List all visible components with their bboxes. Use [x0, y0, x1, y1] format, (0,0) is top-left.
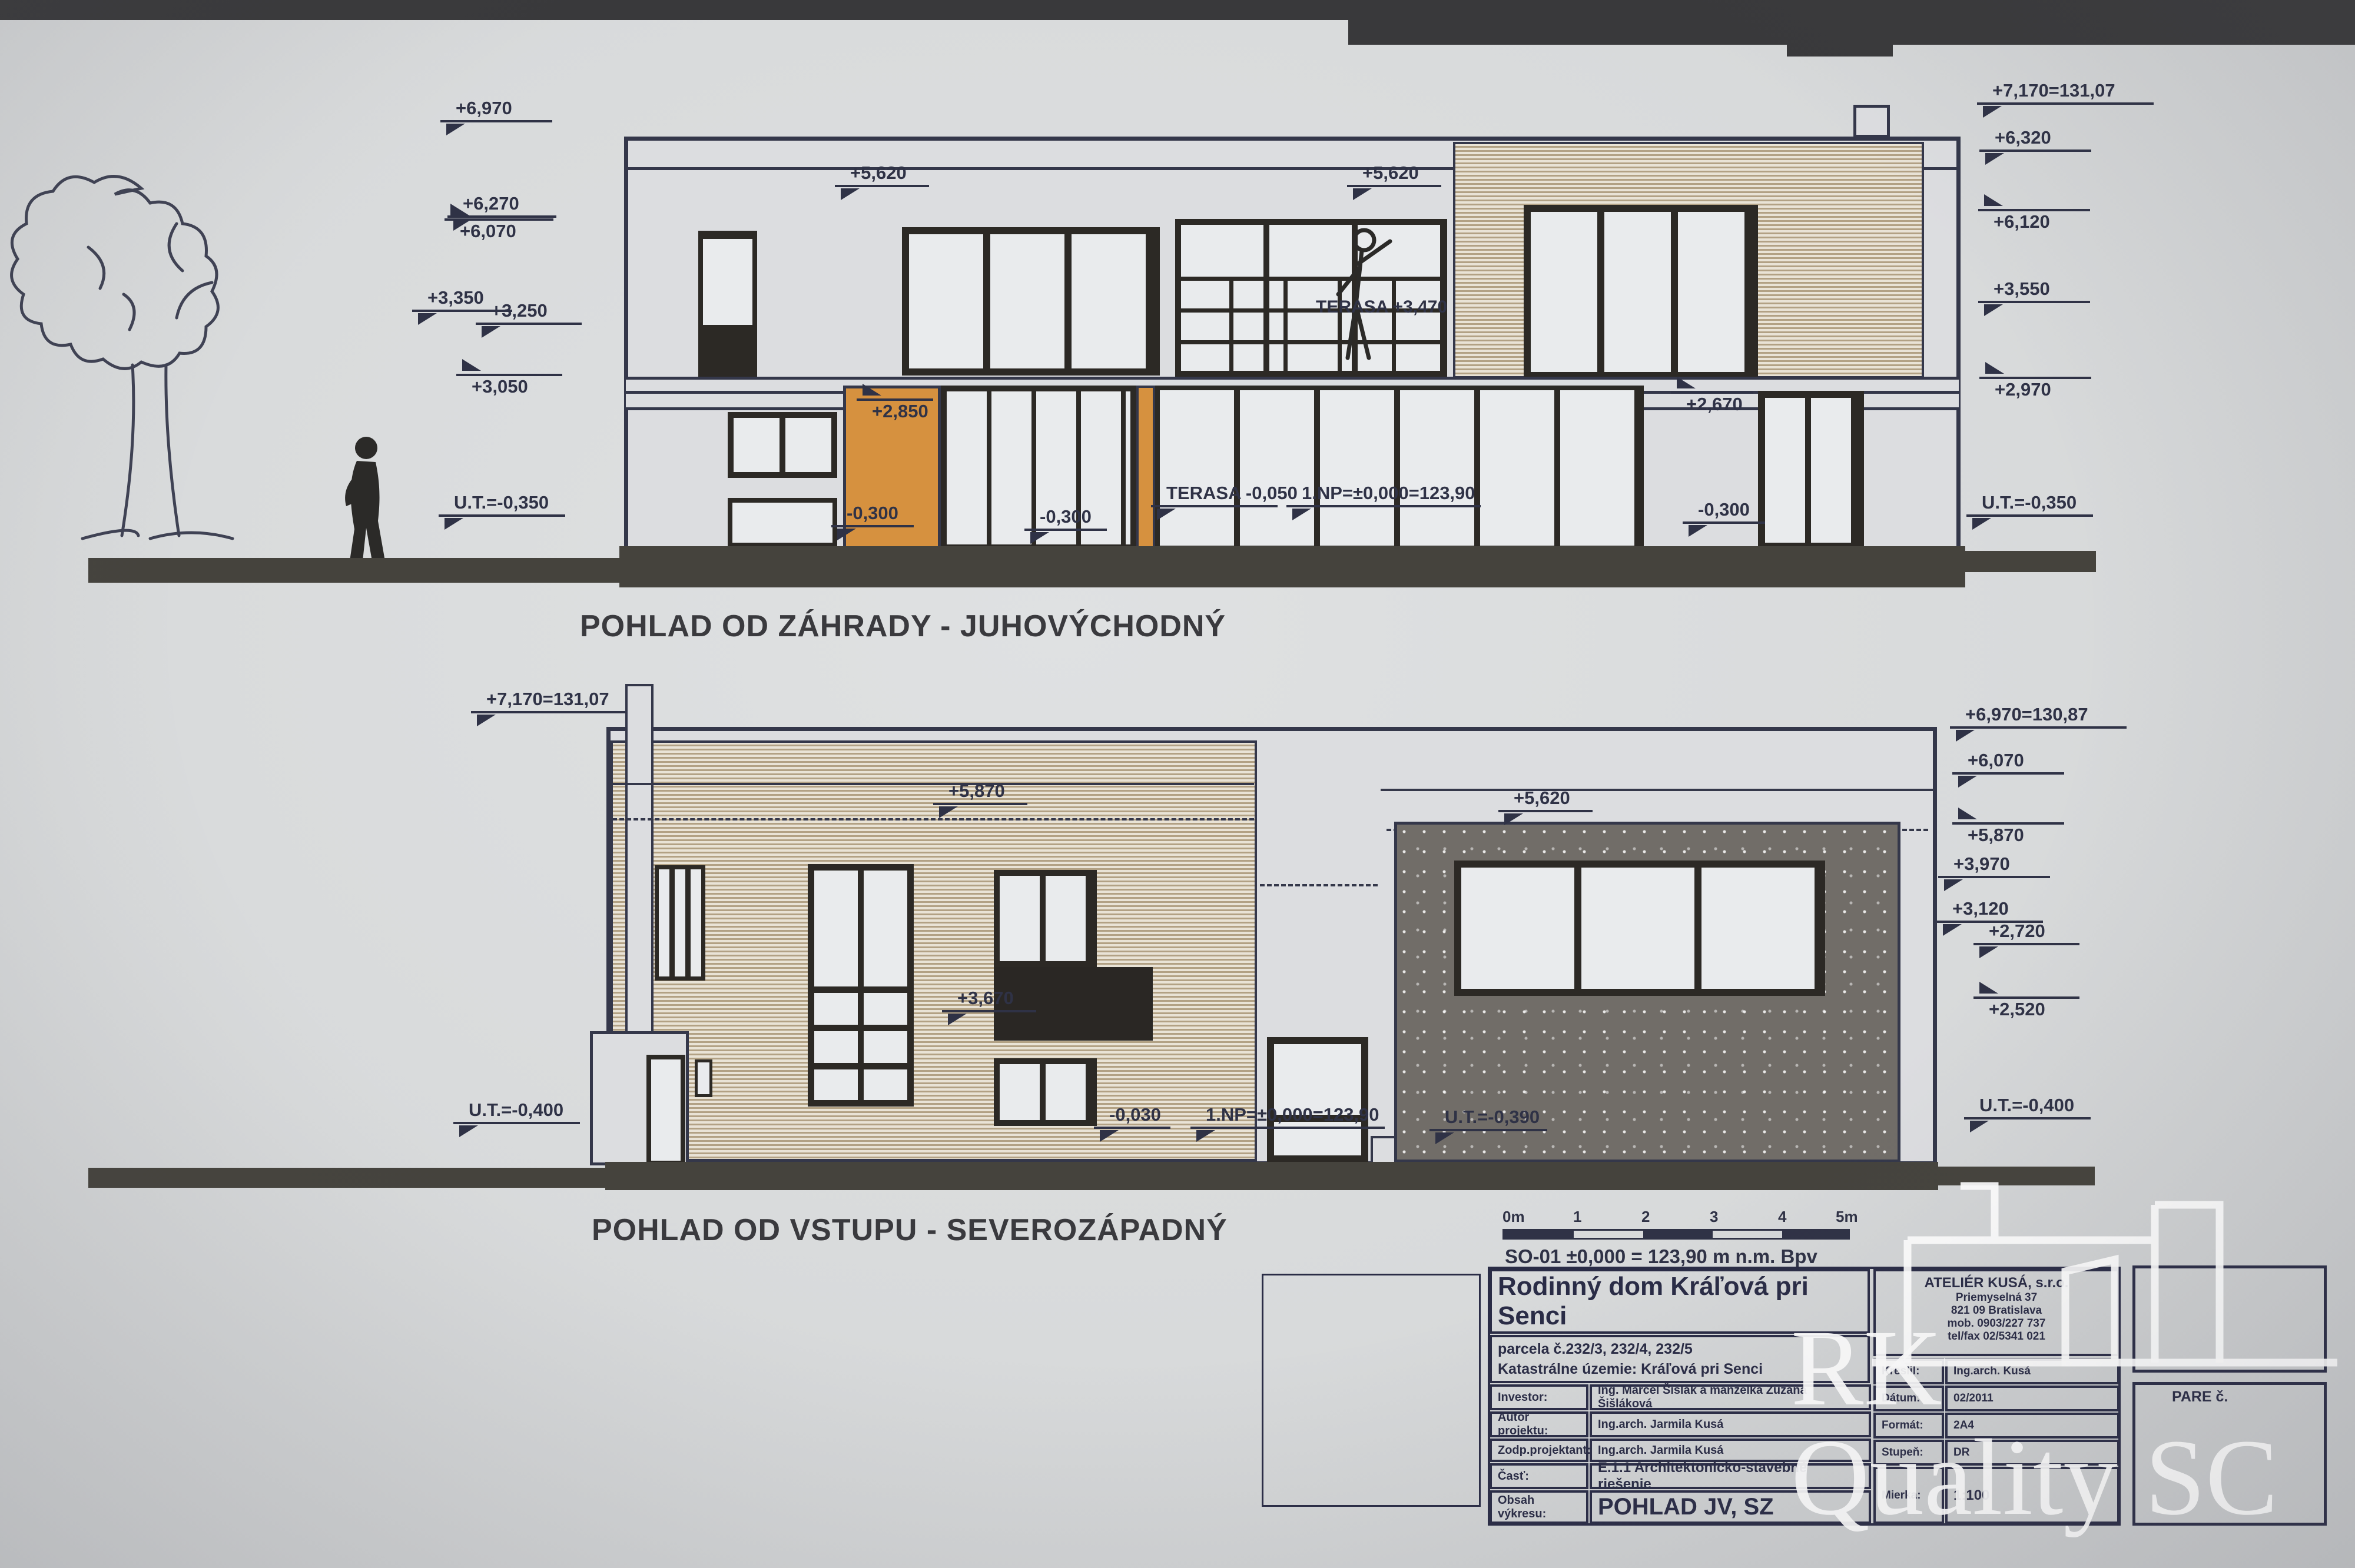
level-flag: +5,620 — [1347, 164, 1441, 200]
marker-flag-icon — [482, 326, 500, 338]
marker-line — [1977, 102, 2154, 105]
elevation-marker: +2,970 — [1979, 362, 2091, 398]
wood-block-window — [1524, 205, 1758, 379]
tb-row-label: Časť: — [1490, 1463, 1588, 1489]
marker-line — [1190, 1127, 1385, 1129]
slit-windows — [655, 865, 705, 981]
level-flag: -0,030 — [1094, 1105, 1170, 1142]
marker-line — [831, 525, 914, 527]
garage-parapet-line — [1381, 789, 1933, 791]
level-flag: 1.NP=±0,000=123,90 — [1190, 1105, 1385, 1142]
tb-row-label: Autor projektu: — [1490, 1411, 1588, 1437]
marker-line — [1973, 943, 2079, 945]
elevation-label: +2,970 — [1995, 380, 2091, 398]
level-label: +5,870 — [948, 782, 1027, 800]
elevation-label: +3,970 — [1953, 855, 2050, 873]
level-label: -0,030 — [1109, 1105, 1170, 1124]
marker-flag-icon — [1958, 808, 1977, 819]
marker-line — [471, 711, 636, 713]
scale-bar — [1502, 1229, 1850, 1240]
elevation-marker: +7,170=131,07 — [471, 690, 636, 726]
slab-dashed-line — [612, 818, 1254, 820]
elevation-marker: +6,970=130,87 — [1950, 705, 2127, 742]
marker-line — [1950, 726, 2127, 729]
garage-ribbon-window — [1454, 861, 1825, 996]
level-label: TERASA -0,050 — [1166, 484, 1278, 502]
drawing-photo: +6,970 +6,270 +6,070 +3,350 +3,250 +3,05… — [0, 0, 2355, 1568]
elevation-label: +3,250 — [491, 301, 582, 320]
roof-vent — [1853, 105, 1890, 138]
marker-flag-icon — [1292, 509, 1311, 520]
scale-tick: 3 — [1710, 1208, 1718, 1226]
watermark-text-rk: RK — [1791, 1320, 1942, 1418]
marker-flag-icon — [1970, 1121, 1989, 1132]
elevation-label: +3,050 — [472, 377, 562, 396]
elevation-marker: +6,120 — [1978, 194, 2090, 231]
elevation-label: +5,870 — [1968, 826, 2064, 844]
tall-mullioned-window — [808, 864, 914, 1107]
tb-row-label: Zodp.projektant: — [1490, 1439, 1588, 1462]
level-label: +5,620 — [1514, 789, 1593, 807]
tb-row-label: Investor: — [1490, 1384, 1588, 1410]
marker-flag-icon — [1979, 982, 1998, 994]
entrance-door — [1267, 1037, 1368, 1162]
marker-line — [440, 120, 552, 122]
level-flag: U.T.=-0,390 — [1429, 1108, 1547, 1144]
level-flag: 1.NP=±0,000=123,90 — [1286, 484, 1481, 520]
elevation-label: +6,320 — [1995, 128, 2091, 147]
marker-line — [453, 1122, 580, 1124]
level-flag: +3,670 — [942, 989, 1036, 1025]
marker-flag-icon — [1985, 362, 2004, 374]
tb-row-label: Obsah výkresu: — [1490, 1490, 1588, 1524]
view-title-top: POHLAD OD ZÁHRADY - JUHOVÝCHODNÝ — [580, 609, 1226, 644]
balcony-railing — [1175, 277, 1447, 378]
level-flag: +2,670 — [1671, 377, 1753, 413]
marker-line — [933, 803, 1027, 805]
level-label: 1.NP=±0,000=123,90 — [1302, 484, 1481, 502]
elevation-marker: +5,870 — [1952, 808, 2064, 844]
person-silhouette — [330, 433, 406, 568]
marker-flag-icon — [1958, 776, 1977, 788]
marker-flag-icon — [1030, 532, 1049, 544]
elevation-marker: +6,320 — [1979, 128, 2091, 165]
level-label: 1.NP=±0,000=123,90 — [1206, 1105, 1385, 1124]
elevation-label: +6,970 — [456, 99, 552, 117]
elevation-marker: +7,170=131,07 — [1977, 81, 2154, 118]
level-flag: +5,870 — [933, 782, 1027, 818]
elevation-label: U.T.=-0,400 — [469, 1101, 580, 1119]
marker-line — [476, 323, 582, 325]
marker-line — [942, 1010, 1036, 1012]
level-label: +3,670 — [957, 989, 1036, 1007]
level-flag: -0,300 — [1683, 500, 1765, 537]
marker-flag-icon — [450, 204, 469, 215]
elevation-label: +3,120 — [1952, 899, 2043, 918]
window — [902, 227, 1160, 376]
elevation-marker: +3,550 — [1978, 280, 2090, 316]
elevation-marker: U.T.=-0,350 — [439, 493, 565, 530]
scale-tick: 0m — [1502, 1208, 1525, 1226]
marker-flag-icon — [459, 1125, 478, 1137]
level-label: +5,620 — [1362, 164, 1441, 182]
level-label: U.T.=-0,390 — [1445, 1108, 1547, 1126]
annex-door — [646, 1055, 685, 1165]
elevation-label: U.T.=-0,350 — [454, 493, 565, 511]
marker-line — [1151, 505, 1278, 507]
marker-line — [1429, 1129, 1547, 1131]
view-title-bottom: POHLAD OD VSTUPU - SEVEROZÁPADNÝ — [592, 1212, 1228, 1248]
level-label: -0,300 — [1698, 500, 1765, 519]
marker-line — [1978, 301, 2090, 303]
marker-flag-icon — [948, 1014, 967, 1025]
orange-accent-strip — [1136, 386, 1155, 550]
marker-flag-icon — [939, 806, 958, 818]
elevation-label: +6,070 — [460, 222, 553, 240]
level-label: +2,670 — [1686, 395, 1753, 413]
level-flag: +5,620 — [835, 164, 929, 200]
window-low — [728, 498, 837, 547]
marker-flag-icon — [462, 359, 481, 371]
annex-window — [695, 1059, 712, 1097]
marker-flag-icon — [837, 529, 856, 540]
marker-flag-icon — [1196, 1130, 1215, 1142]
elevation-marker: +3,970 — [1938, 855, 2050, 891]
window — [994, 870, 1097, 967]
marker-flag-icon — [1984, 304, 2003, 316]
terrain-band — [619, 546, 1965, 587]
level-flag: +2,850 — [857, 384, 933, 420]
marker-line — [439, 514, 565, 517]
marker-flag-icon — [1943, 924, 1962, 936]
elevation-label: +6,120 — [1994, 212, 2090, 231]
elevation-marker: +3,250 — [476, 301, 582, 338]
window — [728, 412, 837, 478]
scale-tick: 1 — [1573, 1208, 1581, 1226]
elevation-marker: +3,050 — [456, 359, 562, 396]
marker-flag-icon — [1985, 153, 2004, 165]
marker-line — [1938, 876, 2050, 878]
level-flag: -0,300 — [1024, 507, 1107, 544]
elevation-marker: +2,520 — [1973, 982, 2079, 1018]
marker-line — [1094, 1127, 1170, 1129]
marker-line — [1347, 185, 1441, 187]
photo-top-band-right — [1348, 0, 2355, 45]
marker-line — [1979, 150, 2091, 152]
level-flag: +5,620 — [1498, 789, 1593, 825]
marker-flag-icon — [1979, 946, 1998, 958]
level-label: -0,300 — [1040, 507, 1107, 526]
marker-flag-icon — [445, 518, 463, 530]
elevation-label: +7,170=131,07 — [486, 690, 636, 708]
elevation-marker: U.T.=-0,400 — [453, 1101, 580, 1137]
marker-flag-icon — [1677, 377, 1696, 388]
marker-line — [1964, 1117, 2091, 1119]
marker-flag-icon — [477, 715, 496, 726]
marker-flag-icon — [1157, 509, 1176, 520]
marker-flag-icon — [1100, 1130, 1119, 1142]
marker-flag-icon — [1353, 188, 1372, 200]
level-label: -0,300 — [847, 504, 914, 522]
marker-flag-icon — [841, 188, 860, 200]
marker-line — [1952, 772, 2064, 775]
elevation-marker: U.T.=-0,400 — [1964, 1096, 2091, 1132]
marker-flag-icon — [1435, 1132, 1454, 1144]
marker-flag-icon — [1956, 730, 1975, 742]
window-tall — [1758, 391, 1864, 550]
terrain-band — [88, 558, 621, 583]
terrain-band — [605, 1162, 1938, 1190]
tree-drawing — [0, 153, 318, 565]
level-label: +5,620 — [850, 164, 929, 182]
marker-flag-icon — [1983, 106, 2002, 118]
scale-tick: 4 — [1778, 1208, 1786, 1226]
elevation-marker: +6,070 — [445, 204, 553, 240]
marker-flag-icon — [1944, 879, 1963, 891]
marker-line — [1683, 521, 1765, 524]
canopy-dashed-line — [1260, 884, 1378, 886]
elevation-marker: +2,720 — [1973, 922, 2079, 958]
marker-flag-icon — [863, 384, 881, 396]
marker-line — [1286, 505, 1481, 507]
scale-tick: 2 — [1641, 1208, 1650, 1226]
elevation-marker: U.T.=-0,350 — [1966, 493, 2093, 530]
level-label: +2,850 — [872, 402, 933, 420]
elevation-marker: +6,970 — [440, 99, 552, 135]
marker-flag-icon — [446, 124, 465, 135]
marker-line — [1498, 810, 1593, 812]
watermark-text-quality: Quality SC — [1791, 1429, 2278, 1527]
marker-flag-icon — [1984, 194, 2003, 206]
elevation-label: +7,170=131,07 — [1992, 81, 2154, 99]
level-flag: -0,300 — [831, 504, 914, 540]
terrace-glazing-lower — [1155, 386, 1644, 550]
marker-line — [835, 185, 929, 187]
elevation-label: U.T.=-0,400 — [1979, 1096, 2091, 1114]
marker-flag-icon — [418, 313, 437, 325]
elevation-label: +3,550 — [1994, 280, 2090, 298]
terrain-band — [88, 1168, 606, 1188]
revision-box — [1262, 1274, 1481, 1507]
marker-flag-icon — [1689, 525, 1707, 537]
level-flag: TERASA -0,050 — [1151, 484, 1278, 520]
window — [994, 1058, 1097, 1126]
marker-line — [1024, 529, 1107, 531]
marker-line — [1966, 514, 2093, 517]
marker-flag-icon — [1972, 518, 1991, 530]
elevation-label: +6,970=130,87 — [1965, 705, 2127, 723]
photo-top-band-step — [1787, 45, 1893, 57]
elevation-label: +2,720 — [1989, 922, 2079, 940]
elevation-label: +2,520 — [1989, 1000, 2079, 1018]
elevation-marker: +6,070 — [1952, 751, 2064, 788]
benchmark-note: SO-01 ±0,000 = 123,90 m n.m. Bpv — [1505, 1245, 1817, 1268]
elevation-label: +6,070 — [1968, 751, 2064, 769]
marker-flag-icon — [1504, 813, 1523, 825]
terrain-band — [1965, 551, 2096, 572]
terrace-upper-label: TERASA +3,470 — [1316, 297, 1447, 317]
elevation-label: U.T.=-0,350 — [1982, 493, 2093, 511]
